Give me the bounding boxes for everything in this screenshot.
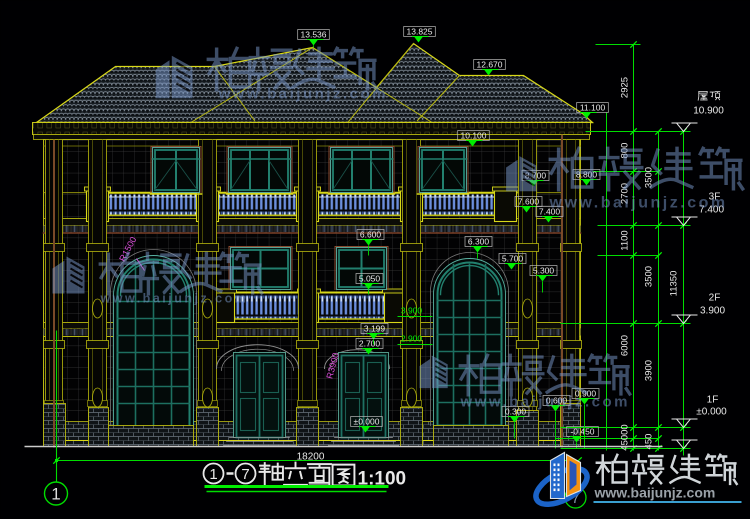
svg-text:www.baijunjz.com: www.baijunjz.com <box>100 292 249 306</box>
svg-text:2925: 2925 <box>620 77 631 98</box>
svg-text:6.300: 6.300 <box>468 237 490 247</box>
svg-text:5.050: 5.050 <box>359 274 381 284</box>
svg-text:-0.450: -0.450 <box>570 427 594 437</box>
svg-text:±0.000: ±0.000 <box>354 417 380 427</box>
svg-text:13.825: 13.825 <box>407 27 433 37</box>
svg-text:18200: 18200 <box>297 452 325 463</box>
svg-text:6.600: 6.600 <box>360 230 382 240</box>
svg-text:6000: 6000 <box>620 335 631 356</box>
svg-text:1100: 1100 <box>620 230 631 250</box>
svg-text:1: 1 <box>209 466 217 483</box>
svg-text:11.100: 11.100 <box>580 103 606 113</box>
svg-text:12.670: 12.670 <box>477 60 503 70</box>
svg-text:3900: 3900 <box>644 360 655 381</box>
svg-text:1: 1 <box>51 485 60 504</box>
svg-text:www.baijunjz.com: www.baijunjz.com <box>460 394 630 411</box>
svg-text:2.900: 2.900 <box>401 334 423 344</box>
svg-text:5.700: 5.700 <box>502 254 524 264</box>
svg-text:3.199: 3.199 <box>364 324 386 334</box>
svg-text:3500: 3500 <box>644 266 655 287</box>
svg-text:11350: 11350 <box>669 271 680 297</box>
svg-text:www.baijunjz.com: www.baijunjz.com <box>594 485 716 501</box>
svg-text:www.baijunjz.com: www.baijunjz.com <box>549 195 728 212</box>
svg-text:7.600: 7.600 <box>518 197 540 207</box>
svg-text:1F: 1F <box>707 395 719 406</box>
svg-text:7: 7 <box>241 466 249 483</box>
svg-text:13.536: 13.536 <box>301 30 327 40</box>
svg-text:www.baijunjz.com: www.baijunjz.com <box>218 86 388 103</box>
svg-text:10.900: 10.900 <box>693 106 724 117</box>
svg-text:5.300: 5.300 <box>533 266 555 276</box>
svg-text:2.700: 2.700 <box>359 339 381 349</box>
svg-text:3.900: 3.900 <box>700 306 725 317</box>
svg-text:3.900: 3.900 <box>401 306 423 316</box>
svg-text:±0.000: ±0.000 <box>696 407 727 418</box>
svg-text:10.100: 10.100 <box>461 131 487 141</box>
svg-text:2F: 2F <box>709 293 721 304</box>
